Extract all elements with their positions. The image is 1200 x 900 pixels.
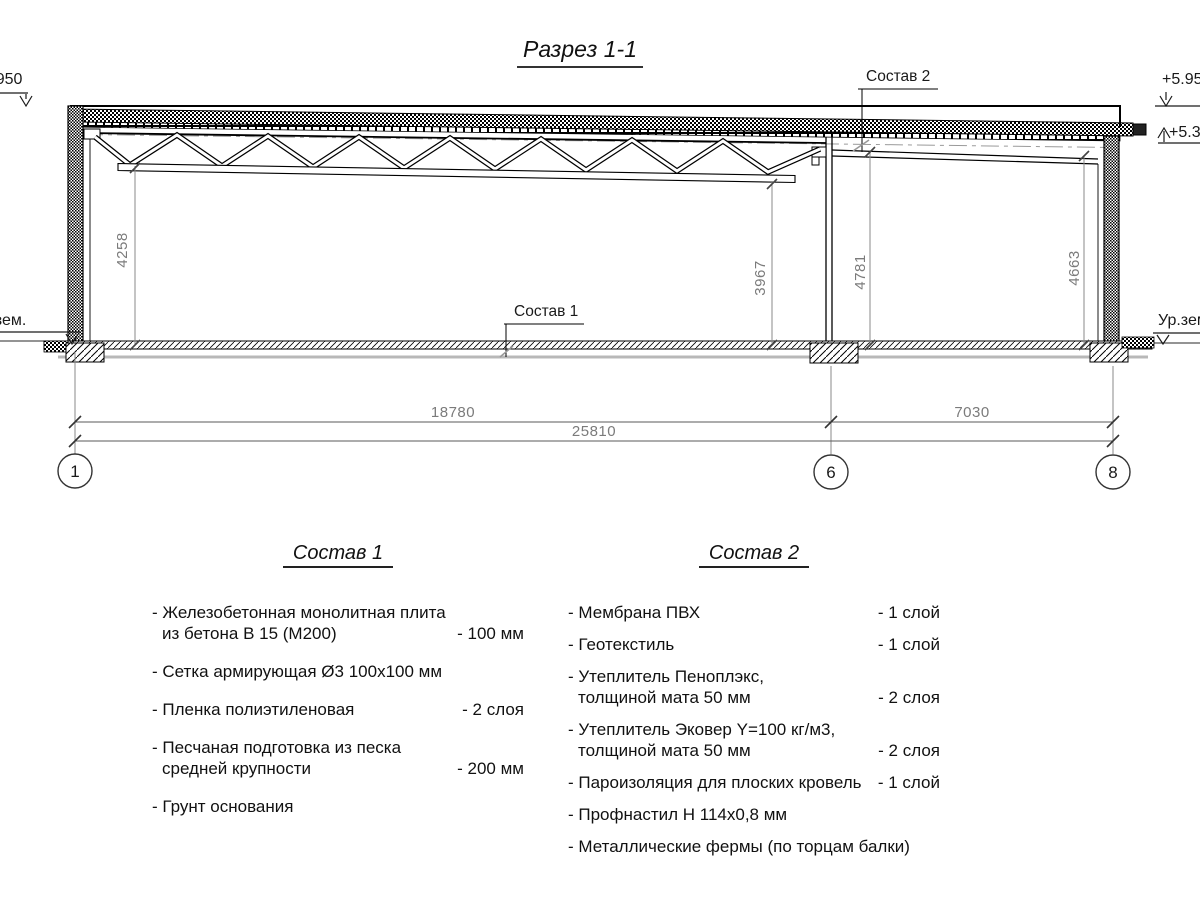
- drawing-sheet: Разрез 1-1 +5.950 +5.950 +5.380 Ур.зем. …: [0, 0, 1200, 900]
- list-item: - Мембрана ПВХ - 1 слой: [568, 602, 940, 623]
- dim-span-18780: 18780: [408, 405, 498, 421]
- list-item: - Утеплитель Эковер Y=100 кг/м3, толщино…: [568, 719, 940, 761]
- roof-truss: [84, 129, 826, 183]
- callout-sostav1-label: Состав 1: [514, 303, 578, 321]
- callout-sostav2-label: Состав 2: [866, 68, 930, 86]
- list-item: - Пароизоляция для плоских кровель - 1 с…: [568, 772, 940, 793]
- dim-height-4663: 4663: [1067, 233, 1083, 303]
- middle-wall: [812, 137, 832, 341]
- elevation-right-low-value: +5.380: [1169, 124, 1200, 142]
- dim-height-4258: 4258: [115, 215, 131, 285]
- ground-level-left-label: Ур.зем.: [0, 312, 26, 330]
- list-item: - Песчаная подготовка из песка средней к…: [152, 737, 524, 779]
- axis-bubble-1: 1: [62, 462, 88, 482]
- dim-span-25810: 25810: [549, 424, 639, 440]
- list-item: - Геотекстиль - 1 слой: [568, 634, 940, 655]
- list-item: - Железобетонная монолитная плита из бет…: [152, 602, 524, 644]
- list-item: - Металлические фермы (по торцам балки): [568, 836, 940, 857]
- floor-slab: [0, 341, 1200, 357]
- axis-bubble-6: 6: [818, 463, 844, 483]
- list-item: - Утеплитель Пеноплэкс, толщиной мата 50…: [568, 666, 940, 708]
- axis-bubble-8: 8: [1100, 463, 1126, 483]
- composition-1-title: Состав 1: [152, 543, 524, 568]
- right-bay-ceiling: [832, 150, 1098, 164]
- elevation-right-top-value: +5.950: [1162, 71, 1200, 89]
- drawing-title: Разрез 1-1: [517, 36, 643, 68]
- list-item: - Профнастил Н 114х0,8 мм: [568, 804, 940, 825]
- roof-layers: [70, 106, 1146, 148]
- right-wall: [1098, 136, 1119, 348]
- dim-height-3967: 3967: [753, 243, 769, 313]
- elevation-left-value: +5.950: [0, 71, 22, 89]
- composition-2-title: Состав 2: [568, 543, 940, 568]
- list-item: - Сетка армирующая Ø3 100х100 мм: [152, 661, 524, 682]
- left-wall: [68, 106, 90, 348]
- ground-level-right-label: Ур.зем.: [1158, 312, 1200, 330]
- composition-2-list: Состав 2 - Мембрана ПВХ - 1 слой - Геоте…: [568, 543, 940, 868]
- dim-height-4781: 4781: [853, 237, 869, 307]
- composition-1-list: Состав 1 - Железобетонная монолитная пли…: [152, 543, 524, 834]
- list-item: - Пленка полиэтиленовая - 2 слоя: [152, 699, 524, 720]
- dim-span-7030: 7030: [927, 405, 1017, 421]
- list-item: - Грунт основания: [152, 796, 524, 817]
